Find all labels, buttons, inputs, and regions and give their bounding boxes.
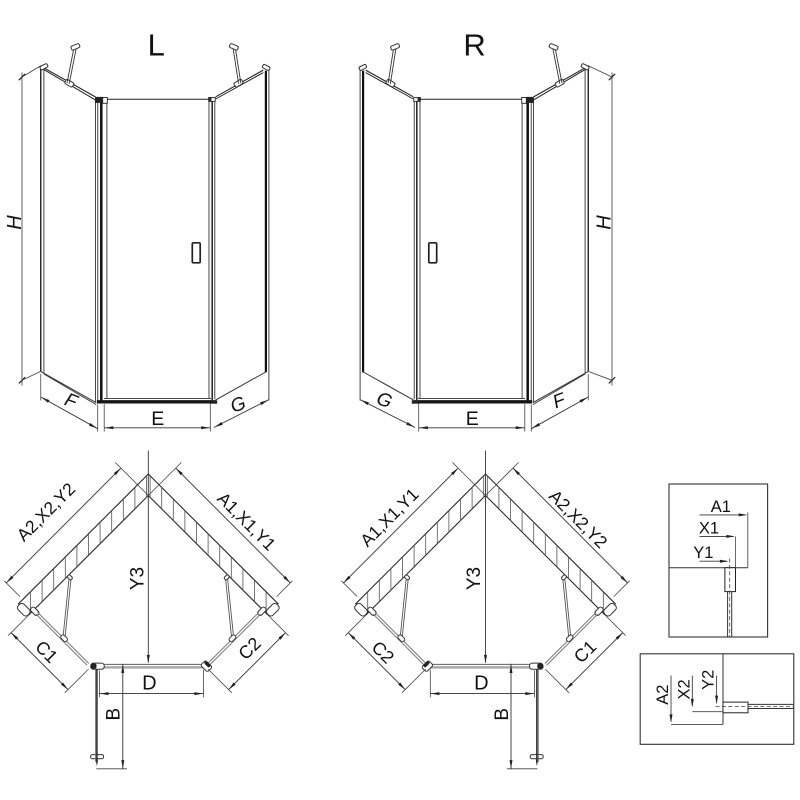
svg-text:B: B — [103, 708, 124, 721]
svg-text:D: D — [142, 673, 156, 695]
svg-text:R: R — [463, 28, 485, 63]
svg-text:A2: A2 — [654, 685, 672, 705]
svg-text:Y3: Y3 — [464, 567, 485, 590]
svg-text:H: H — [4, 215, 26, 230]
svg-text:Y3: Y3 — [127, 567, 148, 590]
svg-text:X2: X2 — [676, 679, 694, 699]
svg-text:H: H — [594, 215, 616, 230]
svg-text:A1: A1 — [711, 498, 731, 516]
svg-text:E: E — [466, 408, 479, 430]
svg-text:B: B — [492, 708, 513, 721]
svg-text:E: E — [151, 408, 164, 430]
svg-text:Y1: Y1 — [693, 544, 713, 562]
svg-text:Y2: Y2 — [700, 670, 718, 690]
svg-text:X1: X1 — [699, 519, 719, 537]
svg-text:L: L — [148, 28, 165, 63]
svg-text:D: D — [474, 673, 488, 695]
